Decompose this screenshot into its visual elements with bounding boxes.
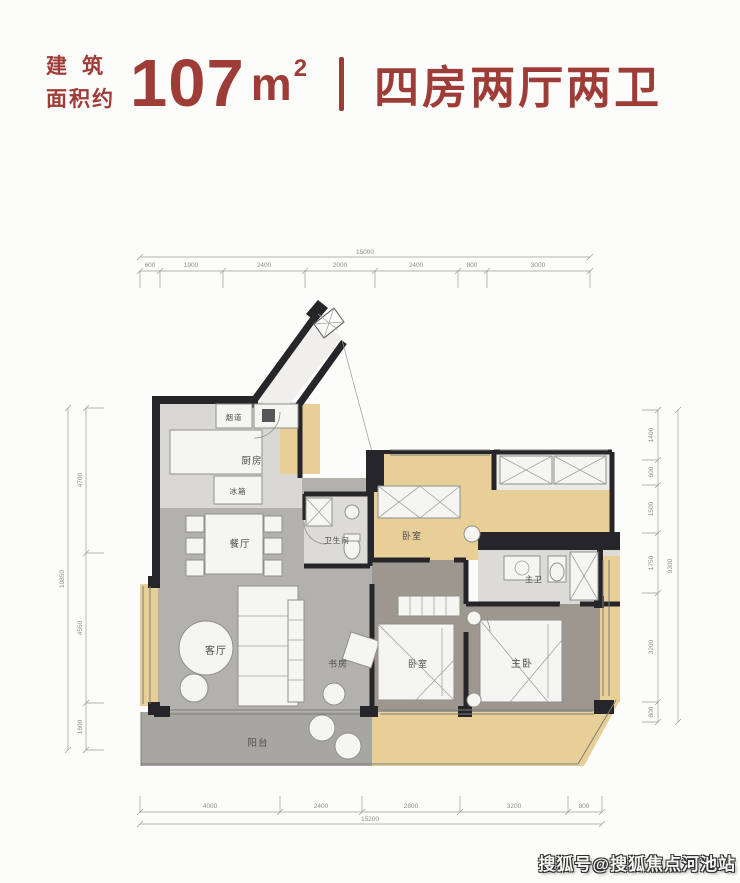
bedroom-top-bed bbox=[378, 486, 460, 518]
dim-top-seg: 600 bbox=[145, 262, 156, 269]
fridge-label: 冰箱 bbox=[230, 486, 247, 496]
dim-right-seg: 1750 bbox=[648, 555, 655, 570]
dim-right-total: 9300 bbox=[667, 558, 674, 573]
kitchen-label: 厨房 bbox=[241, 455, 262, 467]
study-label: 书房 bbox=[328, 658, 348, 669]
dim-left-seg: 1600 bbox=[77, 719, 84, 734]
dim-bottom-seg: 4000 bbox=[203, 803, 218, 810]
dim-top-seg: 1900 bbox=[184, 262, 199, 269]
dim-bottom-total: 15200 bbox=[361, 816, 379, 823]
floorplan-page: 建筑 面积约 107 m2 四房两厅两卫 15000 600 1900 2400… bbox=[0, 0, 740, 883]
bathroom-label: 卫生间 bbox=[324, 535, 350, 545]
dim-bottom-seg: 800 bbox=[579, 803, 590, 810]
floorplan-svg: 15000 600 1900 2400 2000 2400 800 3000 4… bbox=[0, 0, 740, 883]
dim-left-seg: 4550 bbox=[77, 620, 84, 635]
wall-chunk bbox=[594, 700, 614, 714]
dim-right-seg: 600 bbox=[648, 466, 655, 477]
wall-chunk bbox=[360, 706, 378, 717]
dim-right-seg: 800 bbox=[648, 706, 655, 717]
dimension-right: 1400 600 1500 1750 3200 800 9300 bbox=[642, 407, 681, 725]
dim-top-seg: 800 bbox=[467, 262, 478, 269]
dim-left-seg: 4700 bbox=[77, 472, 84, 487]
bedroom-top-label: 卧室 bbox=[402, 530, 422, 541]
dim-bottom-seg: 3200 bbox=[507, 803, 522, 810]
master-bath-label: 主卫 bbox=[525, 574, 543, 584]
master-bedroom-label: 主卧 bbox=[511, 657, 533, 670]
dim-right-seg: 3200 bbox=[648, 639, 655, 654]
dimension-top: 15000 600 1900 2400 2000 2400 800 3000 bbox=[137, 249, 593, 288]
kitchen-counter bbox=[170, 430, 262, 474]
dining-label: 餐厅 bbox=[229, 538, 250, 550]
wall-chunk bbox=[154, 706, 170, 717]
entry-edge bbox=[342, 340, 372, 452]
dim-top-total: 15000 bbox=[356, 249, 374, 256]
dim-bottom-seg: 2400 bbox=[314, 803, 329, 810]
stove bbox=[262, 409, 275, 422]
dim-top-seg: 3000 bbox=[531, 262, 546, 269]
dim-top-seg: 2000 bbox=[333, 262, 348, 269]
flue-label: 烟道 bbox=[226, 412, 243, 422]
dim-top-seg: 2400 bbox=[257, 262, 272, 269]
living-label: 客厅 bbox=[205, 644, 227, 657]
bedroom-bottom-label: 卧室 bbox=[408, 658, 428, 669]
dim-bottom-seg: 2800 bbox=[404, 803, 419, 810]
dim-top-seg: 2400 bbox=[409, 262, 424, 269]
wall-chunk bbox=[478, 532, 620, 550]
dimension-bottom: 4000 2400 2800 3200 800 15200 bbox=[137, 796, 605, 827]
balcony-label: 阳台 bbox=[247, 737, 268, 749]
dim-right-seg: 1500 bbox=[648, 501, 655, 516]
dimension-left: 4700 4550 1600 10850 bbox=[59, 405, 104, 753]
closet-bay bbox=[494, 490, 612, 532]
stove-counter bbox=[254, 404, 298, 428]
wall-chunk bbox=[458, 706, 472, 717]
dim-left-total: 10850 bbox=[59, 570, 66, 588]
watermark: 搜狐号@搜狐焦点河池站 bbox=[538, 850, 736, 875]
dim-right-seg: 1400 bbox=[648, 427, 655, 442]
